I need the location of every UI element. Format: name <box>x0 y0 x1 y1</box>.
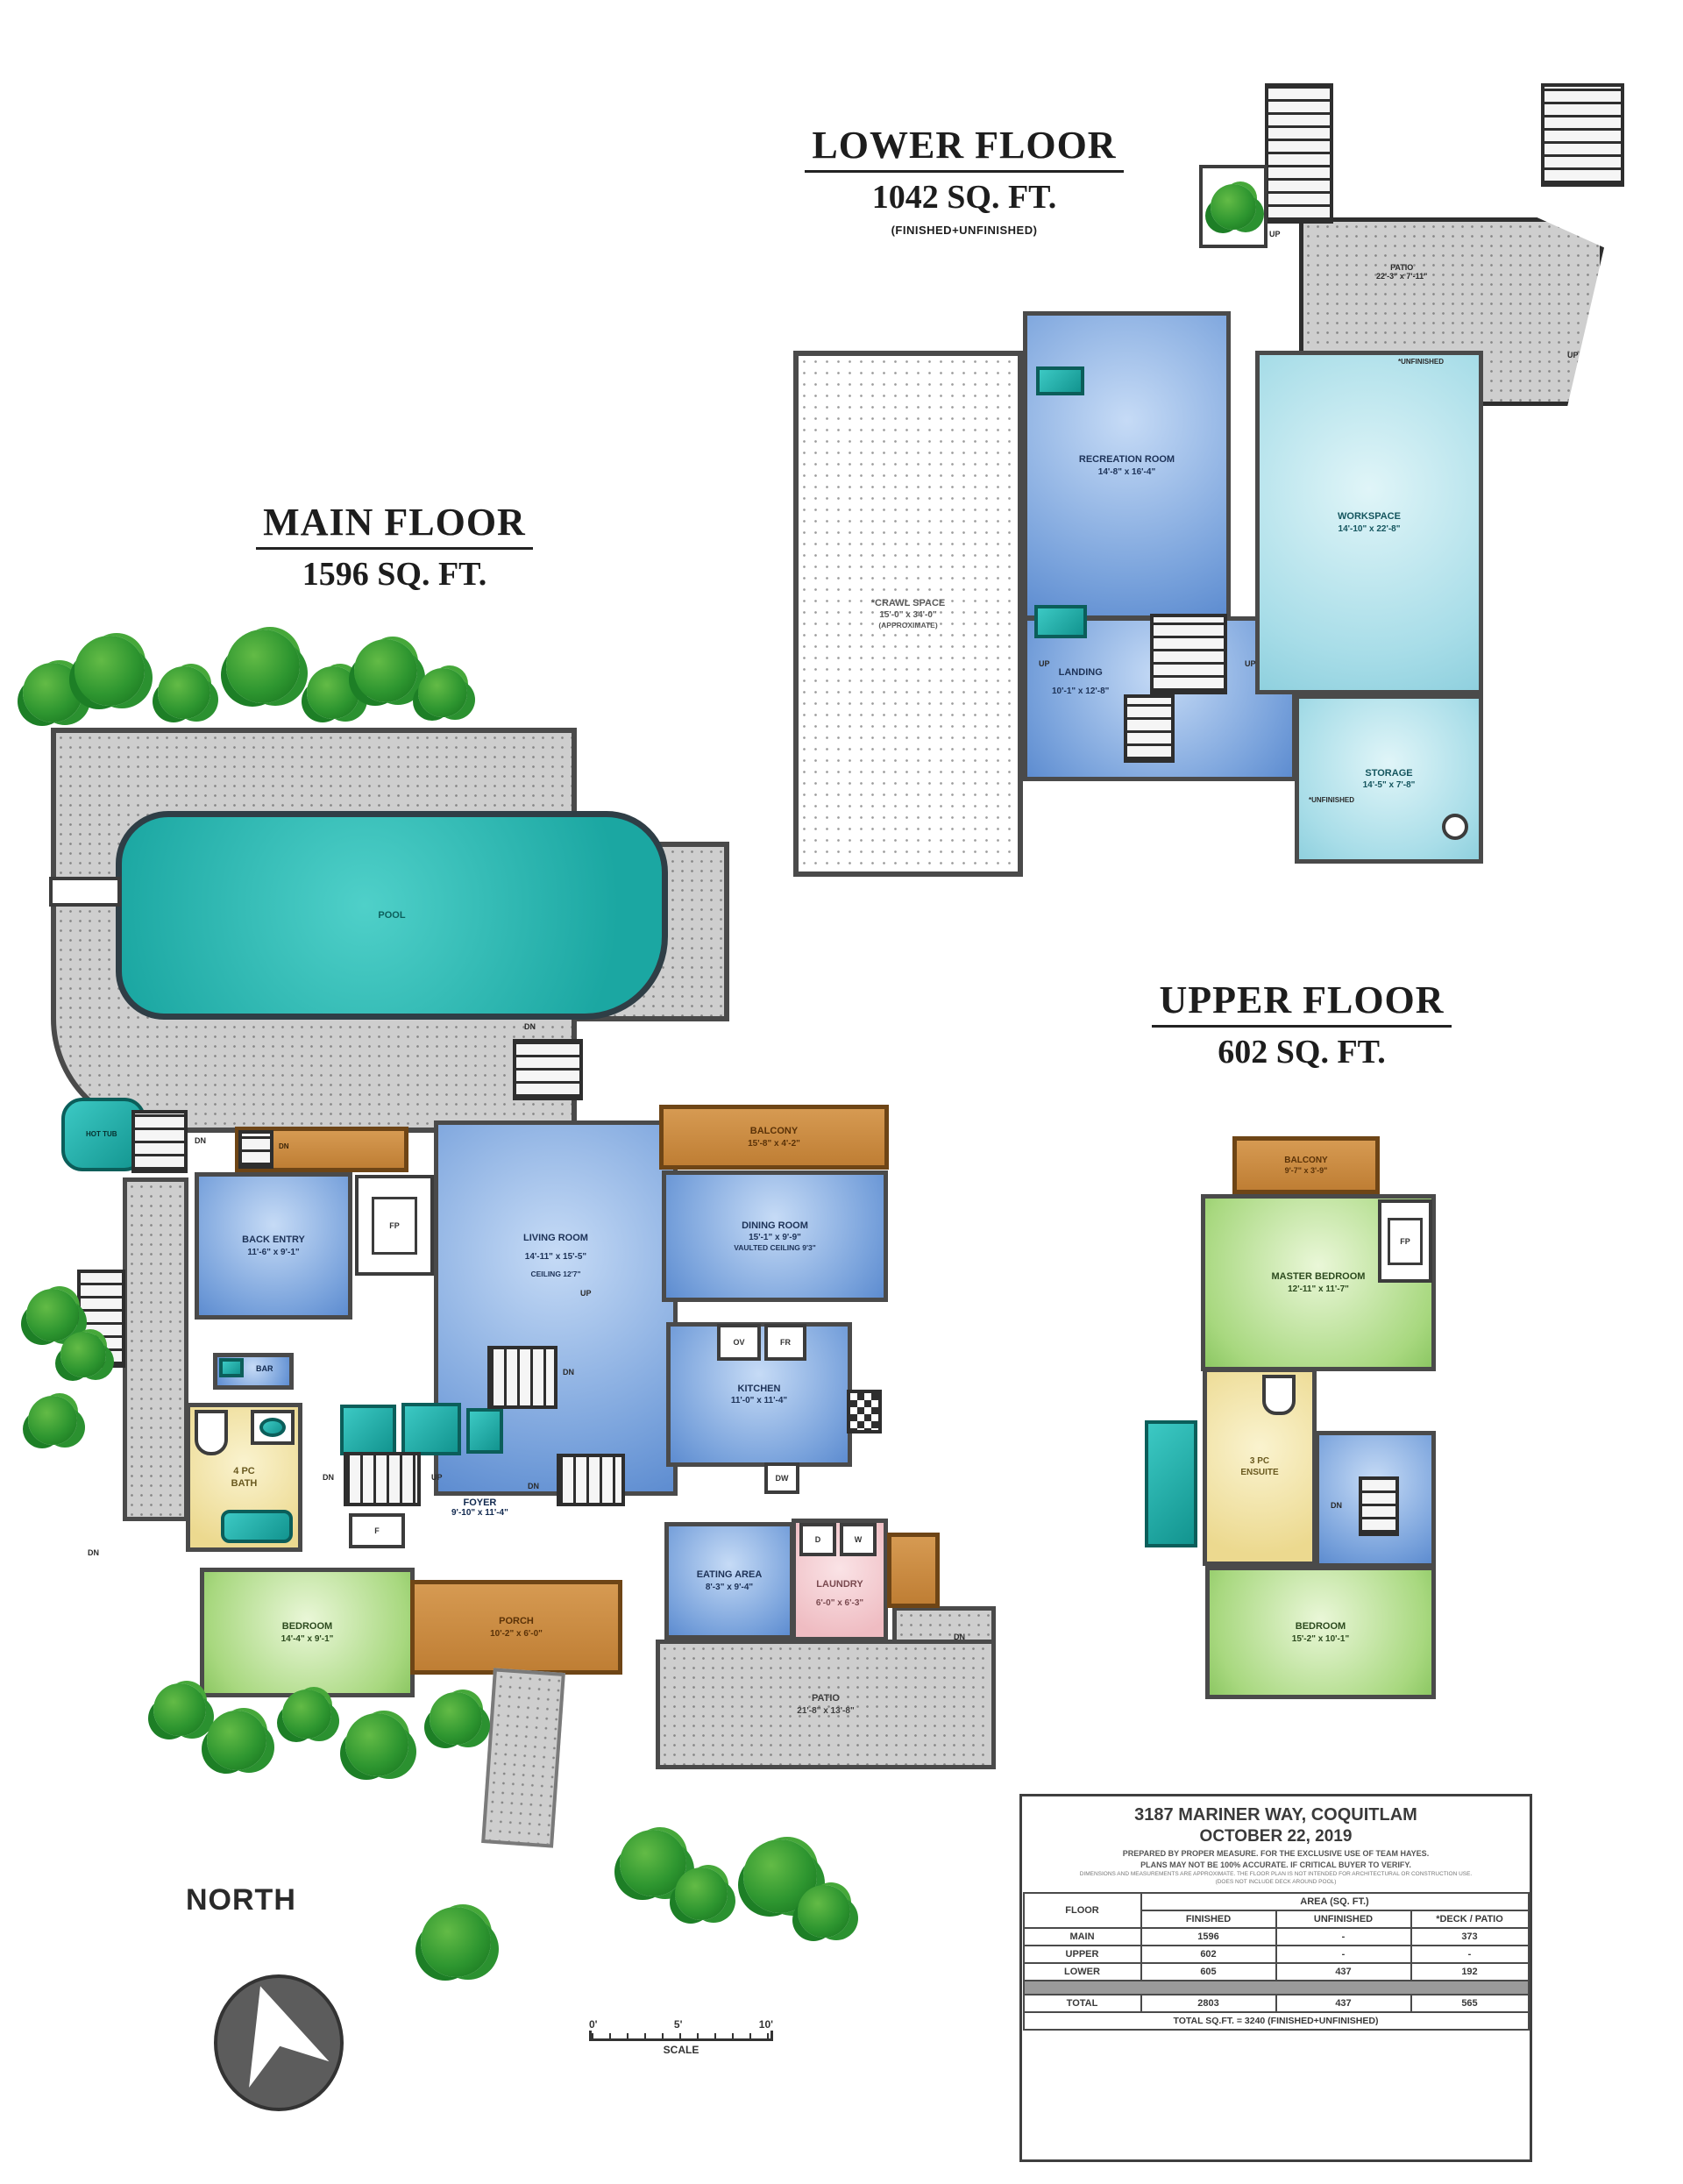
landing-stairs-up <box>1150 614 1227 694</box>
planter-bush <box>1211 184 1256 230</box>
main-floor-name: MAIN FLOOR <box>256 500 533 550</box>
lower-stairs-right <box>1541 83 1624 187</box>
up-label: UP <box>1269 230 1281 238</box>
area-header-cell: AREA (SQ. FT.) <box>1141 1893 1529 1910</box>
floor-header-cell: FLOOR <box>1024 1893 1141 1928</box>
bar-label: BAR <box>256 1364 273 1373</box>
sink-icon <box>251 1410 295 1445</box>
foyer-label: FOYER 9'-10" x 11'-4" <box>451 1497 508 1518</box>
upper-floor-name: UPPER FLOOR <box>1152 978 1451 1028</box>
bush <box>28 1396 77 1445</box>
table-row: UPPER 602 - - <box>1024 1946 1529 1963</box>
dn-label: DN <box>954 1633 965 1641</box>
dining-room: DINING ROOM 15'-1" x 9'-9" VAULTED CEILI… <box>662 1170 888 1302</box>
main-floor-title: MAIN FLOOR 1596 SQ. FT. <box>228 500 561 594</box>
compass-icon <box>210 1973 347 2113</box>
sofa-seat <box>401 1403 461 1455</box>
upper-fireplace-nook: FP <box>1378 1199 1432 1283</box>
scale-label: SCALE <box>589 2044 773 2056</box>
dn-label: DN <box>1331 1501 1342 1510</box>
north-label: NORTH <box>186 1883 296 1917</box>
bush <box>23 663 82 722</box>
bathtub-icon <box>221 1510 293 1543</box>
bush <box>354 639 417 702</box>
dn-label: DN <box>563 1368 574 1377</box>
foyer-stairs-upper <box>487 1346 557 1409</box>
unfinished-label: *UNFINISHED <box>1398 358 1444 366</box>
table-cell: - <box>1276 1928 1411 1946</box>
table-cell: 605 <box>1141 1963 1276 1981</box>
main-bedroom: BEDROOM 14'-4" x 9'-1" <box>200 1568 415 1697</box>
scale-ruler <box>589 2031 773 2041</box>
table-row: MAIN 1596 - 373 <box>1024 1928 1529 1946</box>
toilet-icon <box>1262 1375 1296 1415</box>
scale-bar: 0' 5' 10' SCALE <box>589 2018 773 2056</box>
table-total-row: TOTAL 2803 437 565 <box>1024 1995 1529 2012</box>
bush <box>60 1332 106 1377</box>
table-cell: - <box>1411 1946 1529 1963</box>
bush <box>75 636 145 706</box>
lower-floor-title: LOWER FLOOR 1042 SQ. FT. (FINISHED+UNFIN… <box>771 123 1157 237</box>
up-label: UP <box>1245 659 1256 668</box>
bush <box>675 1867 728 1920</box>
toilet-icon <box>195 1410 228 1455</box>
crawl-space-room: *CRAWL SPACE 15'-0" x 34'-0" (APPROXIMAT… <box>793 351 1023 877</box>
pool-label: POOL <box>378 910 405 921</box>
deck-header-cell: *DECK / PATIO <box>1411 1910 1529 1928</box>
fireplace-nook: FP <box>355 1175 434 1276</box>
drain-icon <box>1442 814 1468 840</box>
fireplace-icon: FP <box>1388 1218 1423 1265</box>
lower-patio-label: PATIO22'-3" x 7'-11" <box>1376 263 1427 281</box>
bush <box>207 1711 266 1770</box>
upper-stairs <box>1359 1476 1399 1536</box>
table-cell: 373 <box>1411 1928 1529 1946</box>
bar-sink <box>219 1358 244 1377</box>
pool-deck-note: (DOES NOT INCLUDE DECK AROUND POOL) <box>1022 1879 1530 1885</box>
unfinished-label: *UNFINISHED <box>1309 796 1354 804</box>
table-cell: LOWER <box>1024 1963 1141 1981</box>
washer-icon: W <box>840 1523 877 1556</box>
finished-header-cell: FINISHED <box>1141 1910 1276 1928</box>
scale-tick-5: 5' <box>674 2018 683 2031</box>
sink-basin <box>259 1418 286 1437</box>
furnace-closet: F <box>349 1513 405 1548</box>
fireplace-icon: FP <box>372 1197 417 1255</box>
deck-stairs <box>513 1039 583 1100</box>
hall-stairs <box>557 1454 625 1506</box>
dn-label: DN <box>195 1136 206 1145</box>
dn-label: DN <box>88 1548 99 1557</box>
dn-label: DN <box>528 1482 539 1490</box>
date: OCTOBER 22, 2019 <box>1022 1827 1530 1846</box>
porch: PORCH 10'-2" x 6'-0" <box>410 1580 622 1675</box>
table-cell: MAIN <box>1024 1928 1141 1946</box>
rear-deck-stairs <box>238 1130 273 1169</box>
scale-tick-10: 10' <box>759 2018 773 2031</box>
table-cell: 602 <box>1141 1946 1276 1963</box>
sofa-seat <box>340 1405 396 1455</box>
bush <box>307 666 359 719</box>
upper-balcony: BALCONY 9'-7" x 3'-9" <box>1232 1136 1380 1194</box>
table-cell: 1596 <box>1141 1928 1276 1946</box>
bush <box>430 1692 482 1745</box>
walkway <box>481 1668 565 1847</box>
accuracy-note: PLANS MAY NOT BE 100% ACCURATE. IF CRITI… <box>1022 1860 1530 1869</box>
table-spacer-row <box>1024 1981 1529 1995</box>
foyer-stairs-lower <box>344 1452 421 1506</box>
planter-box <box>1199 165 1268 248</box>
table-row: LOWER 605 437 192 <box>1024 1963 1529 1981</box>
table-cell: 192 <box>1411 1963 1529 1981</box>
table-footer-row: TOTAL SQ.FT. = 3240 (FINISHED+UNFINISHED… <box>1024 2012 1529 2030</box>
workspace-room: WORKSPACE 14'-10" x 22'-8" <box>1255 351 1483 694</box>
upper-floor-title: UPPER FLOOR 602 SQ. FT. <box>1131 978 1473 1071</box>
ensuite-tub <box>1145 1420 1197 1547</box>
bush <box>418 668 467 717</box>
eating-area-room: EATING AREA 8'-3" x 9'-4" <box>664 1522 794 1640</box>
up-label: UP <box>431 1473 443 1482</box>
stove-icon <box>847 1390 882 1433</box>
dryer-icon: D <box>799 1523 836 1556</box>
bush <box>421 1907 491 1977</box>
main-balcony: BALCONY 15'-8" x 4'-2" <box>659 1105 889 1170</box>
back-entry-room: BACK ENTRY 11'-6" x 9'-1" <box>195 1172 352 1320</box>
table-cell: 437 <box>1276 1995 1411 2012</box>
bush <box>345 1713 408 1776</box>
lower-stairs-left <box>1265 83 1333 224</box>
diving-board <box>49 877 121 907</box>
upper-floor-area: 602 SQ. FT. <box>1131 1033 1473 1071</box>
side-stairs-top <box>131 1110 188 1173</box>
info-panel: 3187 MARINER WAY, COQUITLAM OCTOBER 22, … <box>1019 1794 1532 2162</box>
bush <box>153 1683 206 1736</box>
table-cell: 2803 <box>1141 1995 1276 2012</box>
landing-stairs-down <box>1124 694 1175 763</box>
lower-floor-note: (FINISHED+UNFINISHED) <box>771 224 1157 237</box>
pool: POOL <box>116 811 668 1020</box>
scale-tick-0: 0' <box>589 2018 598 2031</box>
floor-plan-page: LOWER FLOOR 1042 SQ. FT. (FINISHED+UNFIN… <box>0 0 1683 2184</box>
table-header-row: FLOOR AREA (SQ. FT.) <box>1024 1893 1529 1910</box>
area-table: FLOOR AREA (SQ. FT.) FINISHED UNFINISHED… <box>1023 1892 1530 2031</box>
main-patio: PATIO 21'-8" x 13'-8" <box>656 1640 996 1769</box>
total-sqft-cell: TOTAL SQ.FT. = 3240 (FINISHED+UNFINISHED… <box>1024 2012 1529 2030</box>
disclaimer-note: DIMENSIONS AND MEASUREMENTS ARE APPROXIM… <box>1022 1871 1530 1877</box>
bush <box>158 666 210 719</box>
bush <box>282 1690 331 1739</box>
table-cell: TOTAL <box>1024 1995 1141 2012</box>
address: 3187 MARINER WAY, COQUITLAM <box>1022 1805 1530 1825</box>
bush <box>798 1885 850 1938</box>
ensuite-room: 3 PC ENSUITE <box>1203 1368 1317 1566</box>
up-label: UP <box>580 1289 592 1298</box>
dishwasher-icon: DW <box>764 1462 799 1494</box>
up-label: UP <box>1039 659 1050 668</box>
oven-icon: OV <box>717 1324 761 1361</box>
window-box <box>1036 366 1084 395</box>
fridge-icon: FR <box>764 1324 806 1361</box>
prepared-by-note: PREPARED BY PROPER MEASURE. FOR THE EXCL… <box>1022 1849 1530 1858</box>
side-deck-strip <box>123 1177 188 1521</box>
recreation-room: RECREATION ROOM 14'-8" x 16'-4" <box>1023 311 1231 620</box>
sofa-seat <box>466 1408 503 1454</box>
main-floor-area: 1596 SQ. FT. <box>228 555 561 594</box>
lower-floor-area: 1042 SQ. FT. <box>771 178 1157 217</box>
table-cell: - <box>1276 1946 1411 1963</box>
bush <box>226 630 300 703</box>
dn-label: DN <box>524 1022 536 1031</box>
lower-floor-name: LOWER FLOOR <box>805 123 1123 173</box>
spacer-cell <box>1024 1981 1529 1995</box>
window-box <box>1034 605 1087 638</box>
dn-label: DN <box>279 1142 289 1150</box>
table-cell: 565 <box>1411 1995 1529 2012</box>
up-label: UP <box>1567 351 1579 359</box>
upper-bedroom: BEDROOM 15'-2" x 10'-1" <box>1205 1566 1436 1699</box>
table-cell: UPPER <box>1024 1946 1141 1963</box>
bush <box>26 1289 79 1341</box>
table-cell: 437 <box>1276 1963 1411 1981</box>
side-deck-orange <box>887 1533 940 1608</box>
unfinished-header-cell: UNFINISHED <box>1276 1910 1411 1928</box>
hot-tub-label: HOT TUB <box>86 1130 121 1139</box>
dn-label: DN <box>323 1473 334 1482</box>
